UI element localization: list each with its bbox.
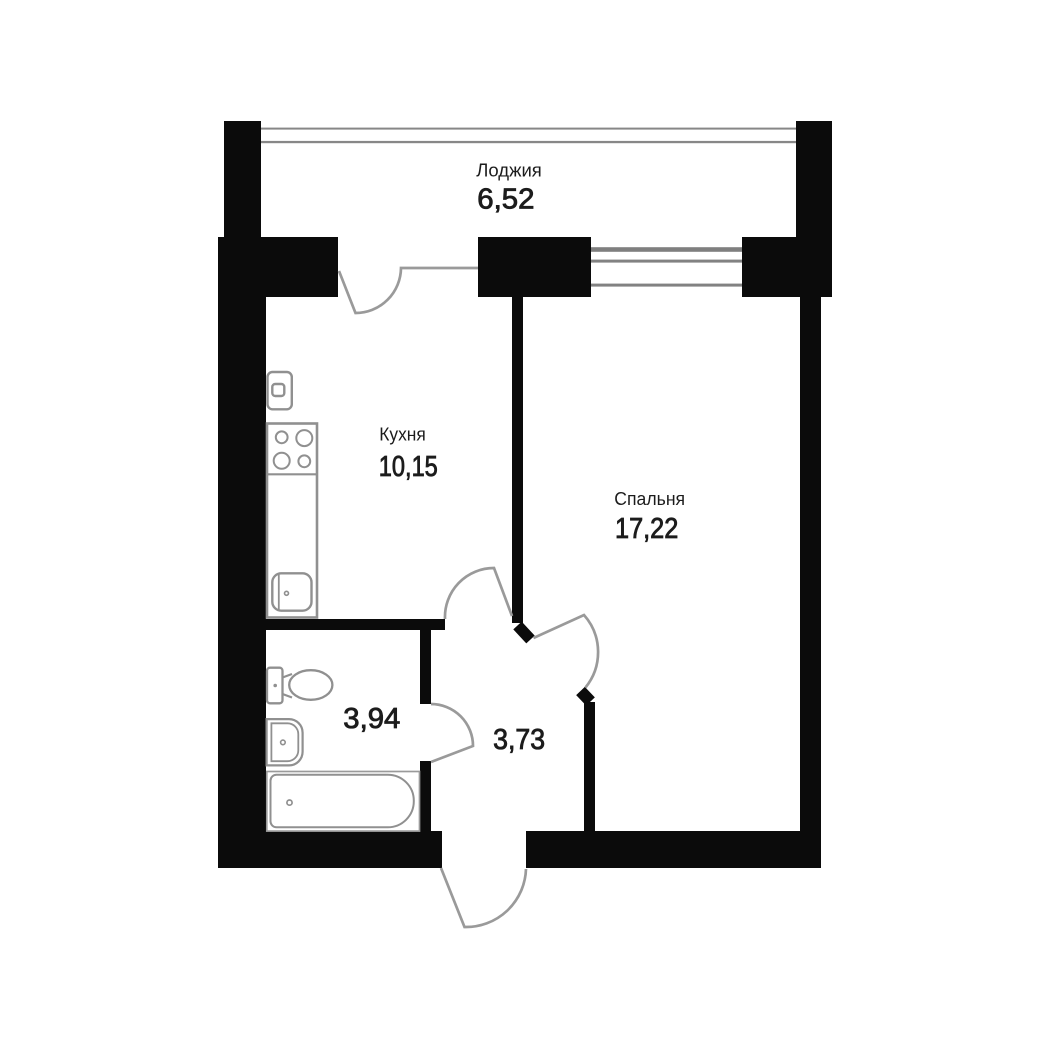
svg-text:17,22: 17,22	[615, 513, 678, 545]
svg-text:Кухня: Кухня	[379, 424, 426, 445]
svg-text:3,94: 3,94	[343, 703, 400, 735]
svg-text:10,15: 10,15	[379, 451, 438, 483]
svg-text:3,73: 3,73	[493, 724, 545, 756]
svg-text:6,52: 6,52	[477, 183, 534, 215]
svg-text:Лоджия: Лоджия	[476, 160, 542, 181]
svg-text:Спальня: Спальня	[614, 488, 685, 509]
